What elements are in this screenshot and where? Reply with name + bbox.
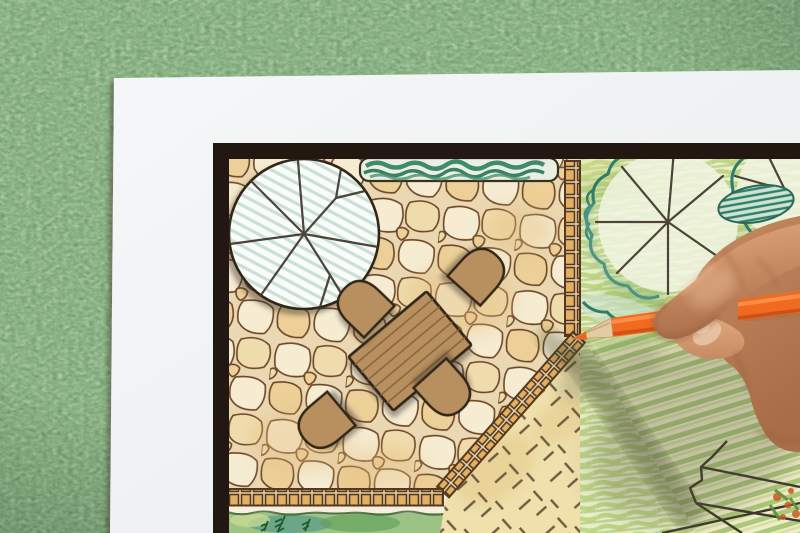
tile-edging-bottom <box>227 489 443 506</box>
hedge <box>360 158 558 181</box>
bottom-planting-bed <box>228 512 452 533</box>
scene-svg <box>0 0 800 533</box>
photo-garden-plan-drawing <box>0 0 800 533</box>
tile-edging-right <box>565 161 580 336</box>
